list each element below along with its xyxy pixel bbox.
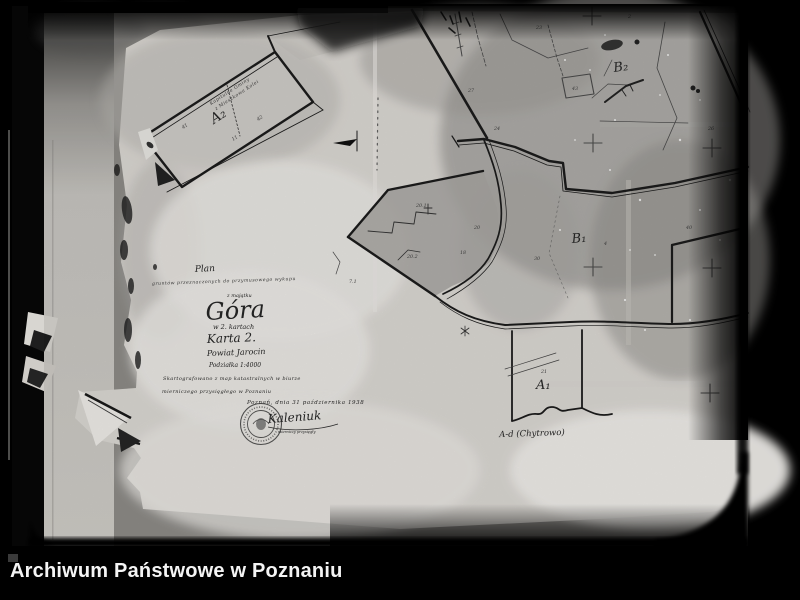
archive-scan-viewer: Kapitulne Gminy z Mieszkowa Kolei A₂ 41 … [0,0,800,600]
archive-footer-bar: Archiwum Państwowe w Poznaniu [0,546,800,600]
map-scan-image: Kapitulne Gminy z Mieszkowa Kolei A₂ 41 … [0,0,800,600]
archive-name-label: Archiwum Państwowe w Poznaniu [10,560,343,583]
exposure-vignettes [28,2,750,548]
